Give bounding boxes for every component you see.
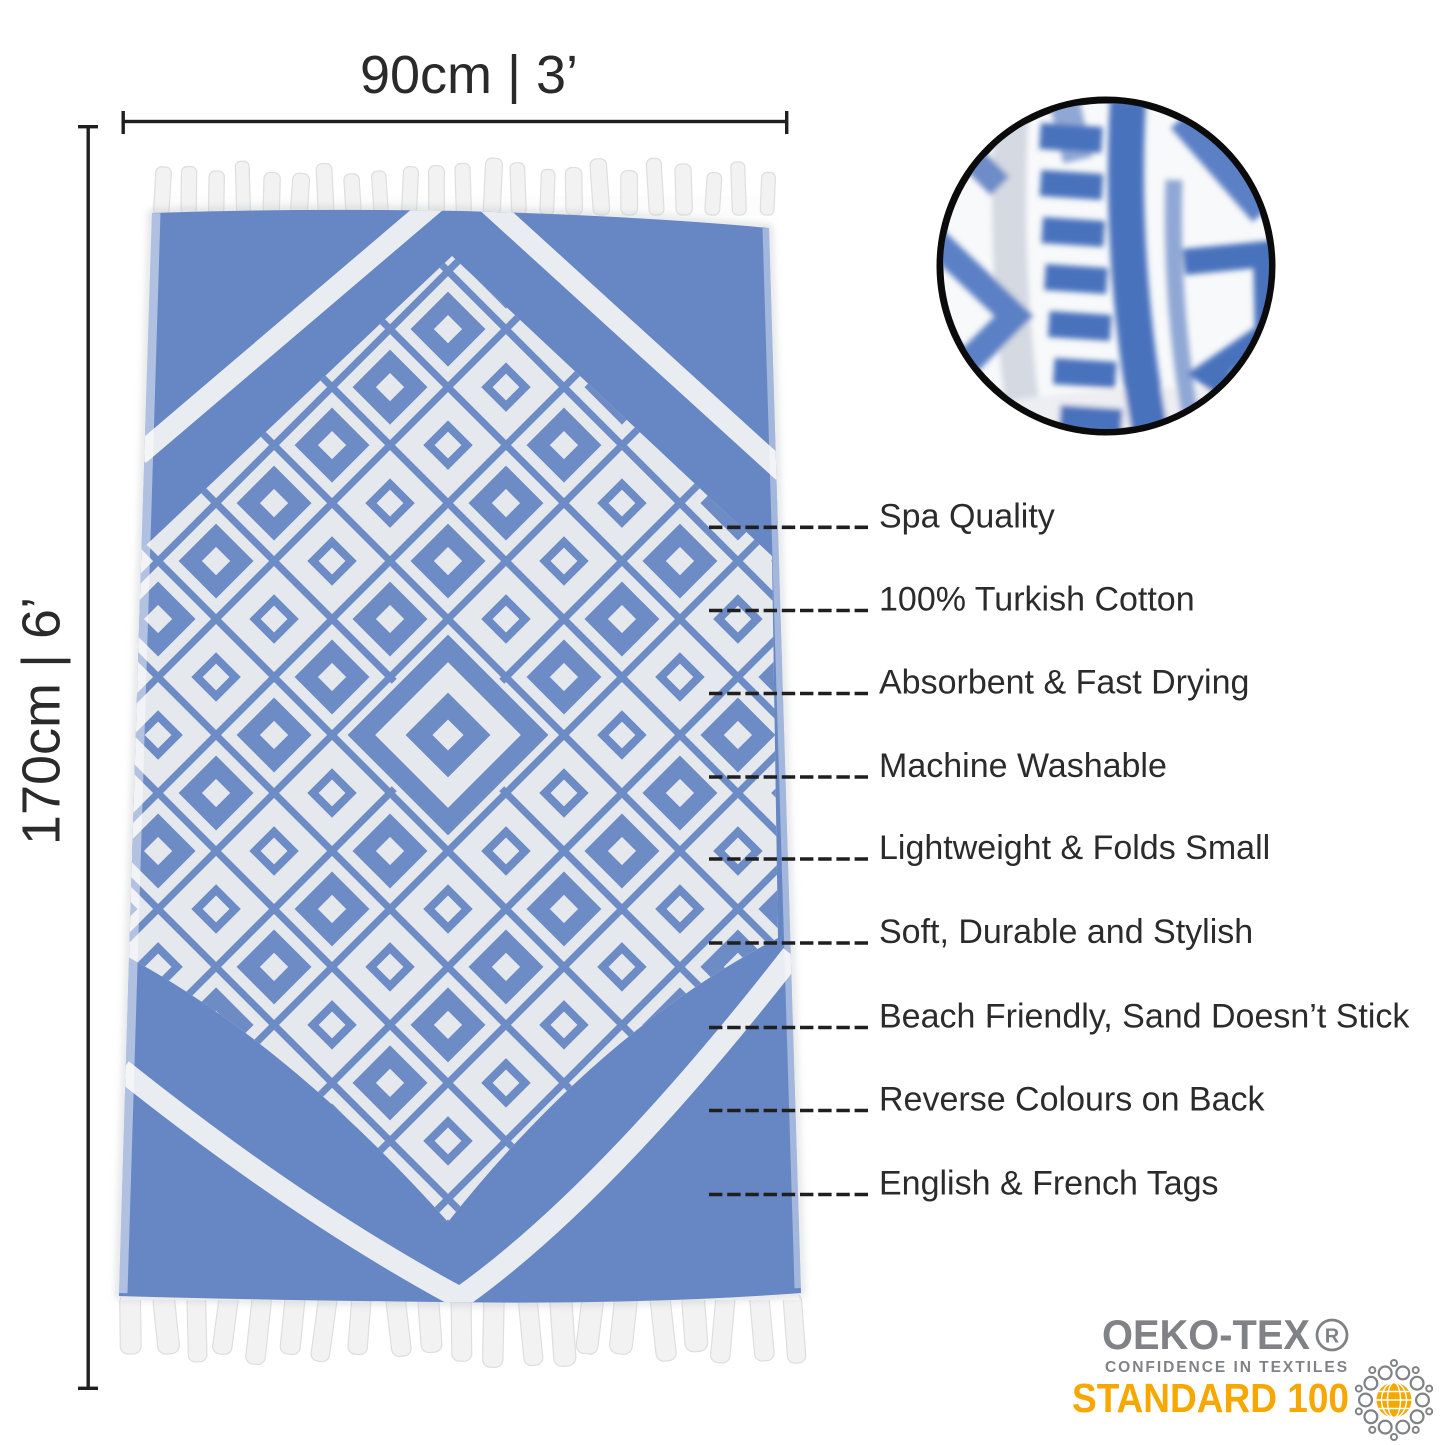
svg-text:CONFIDENCE IN TEXTILES: CONFIDENCE IN TEXTILES: [1105, 1359, 1349, 1376]
svg-text:Lightweight & Folds Small: Lightweight & Folds Small: [879, 829, 1270, 867]
svg-text:Spa Quality: Spa Quality: [879, 497, 1055, 535]
svg-text:170cm | 6’: 170cm | 6’: [12, 597, 72, 845]
svg-text:Soft, Durable and Stylish: Soft, Durable and Stylish: [879, 913, 1253, 951]
svg-text:100% Turkish Cotton: 100% Turkish Cotton: [879, 581, 1195, 619]
svg-text:STANDARD 100: STANDARD 100: [1072, 1375, 1349, 1421]
svg-text:Machine Washable: Machine Washable: [879, 747, 1167, 785]
svg-text:R: R: [1325, 1326, 1340, 1348]
svg-text:90cm | 3’: 90cm | 3’: [360, 45, 578, 105]
svg-text:OEKO-TEX: OEKO-TEX: [1102, 1311, 1310, 1358]
svg-text:Beach Friendly, Sand Doesn’t S: Beach Friendly, Sand Doesn’t Stick: [879, 998, 1410, 1036]
svg-text:Absorbent & Fast Drying: Absorbent & Fast Drying: [879, 664, 1249, 702]
svg-text:English & French Tags: English & French Tags: [879, 1165, 1219, 1203]
svg-text:Reverse Colours on Back: Reverse Colours on Back: [879, 1081, 1266, 1119]
